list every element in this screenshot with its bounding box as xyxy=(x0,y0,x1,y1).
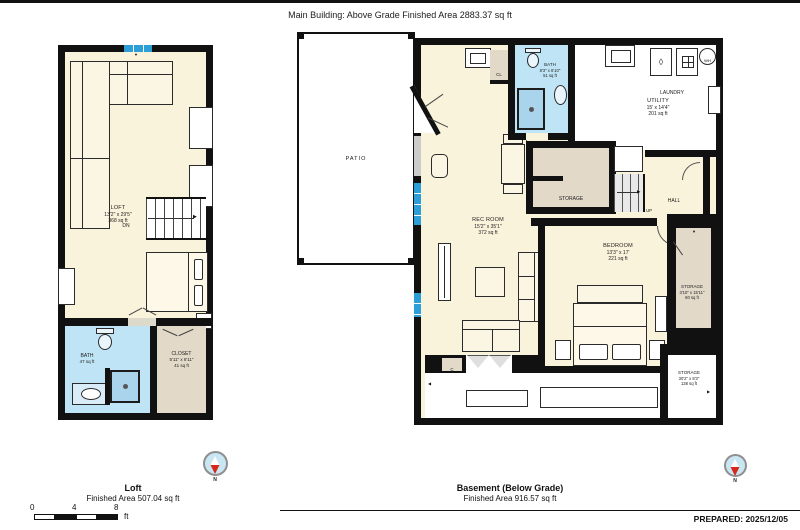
utility-sink xyxy=(605,45,635,67)
room-name: STORAGE xyxy=(559,196,583,202)
loft-bath-label: BATH 47 sq ft xyxy=(66,353,108,365)
compass-needle-white xyxy=(731,459,740,468)
scale-bar-segments xyxy=(34,514,118,521)
clipped-title-fragment xyxy=(387,0,396,2)
interior-wall xyxy=(548,133,570,140)
tv-console xyxy=(438,243,451,301)
room-name: CL xyxy=(496,72,502,77)
pillow xyxy=(612,344,641,360)
interior-wall xyxy=(533,176,563,181)
sofa-seam xyxy=(492,330,493,352)
room-area: 47 sq ft xyxy=(66,359,108,365)
storage-bottom-zone xyxy=(668,355,716,418)
c-closet-zone: C xyxy=(442,358,462,371)
console-line xyxy=(444,246,445,298)
bed-bench xyxy=(577,285,643,303)
up-text: UP xyxy=(646,208,652,213)
loveseat xyxy=(462,320,520,352)
bedroom-label: BEDROOM 13'3" x 17' 221 sq ft xyxy=(568,243,668,262)
armchair xyxy=(431,154,448,178)
cl-closet-zone: CL xyxy=(490,50,508,84)
pillow xyxy=(194,285,203,306)
room-name: BEDROOM xyxy=(568,243,668,250)
sofa-seam xyxy=(519,299,535,300)
loft-finished-area: Finished Area 507.04 sq ft xyxy=(48,494,218,503)
room-area: 368 sq ft xyxy=(73,218,163,224)
interior-wall xyxy=(531,218,657,226)
shower-drain-icon xyxy=(529,107,534,112)
scale-tick-8: 8 xyxy=(114,503,118,512)
patio-post xyxy=(298,33,304,39)
scale-segment xyxy=(34,514,55,520)
compass-needle-red xyxy=(211,465,220,474)
interior-wall xyxy=(508,133,526,140)
compass-needle-white xyxy=(211,456,220,465)
clipped-title-fragment xyxy=(454,0,466,2)
storage-mid-label: STORAGE xyxy=(533,186,609,206)
room-area: 221 sq ft xyxy=(568,256,668,262)
stairs-arrow-icon: ▶ xyxy=(193,215,197,220)
laundry-label: LAUNDRY xyxy=(642,80,702,100)
cl-label: CL xyxy=(490,62,508,82)
room-area: 60 sq ft xyxy=(668,295,716,300)
room-name: PATIO xyxy=(346,156,367,162)
interior-wall xyxy=(150,326,157,413)
stairs-arrow-icon: ▶ xyxy=(637,190,640,195)
window-alcove xyxy=(189,107,213,149)
sink-basin xyxy=(554,85,567,105)
nightstand xyxy=(555,340,571,360)
compass-icon xyxy=(203,451,228,476)
scale-segment xyxy=(97,514,118,520)
rec-room-label: REC ROOM 15'2" x 35'1" 372 sq ft xyxy=(448,217,528,236)
shelf xyxy=(540,387,658,408)
window-icon xyxy=(414,183,421,225)
interior-wall xyxy=(703,150,710,221)
room-area: 138 sq ft xyxy=(666,381,712,386)
top-rule-thin xyxy=(0,0,800,1)
floor-plan-sheet: { "header": { "title": "Main Building: A… xyxy=(0,0,800,530)
basement-plan: REC ROOM 15'2" x 35'1" 372 sq ft CL BATH… xyxy=(414,38,723,425)
storage-right-zone xyxy=(676,228,711,328)
wet-bar-sink xyxy=(465,48,491,68)
pillow xyxy=(579,344,608,360)
bottom-rule xyxy=(280,510,800,511)
basement-title: Basement (Below Grade) xyxy=(405,483,615,493)
patio: PATIO xyxy=(297,32,415,265)
sofa-seam xyxy=(519,276,535,277)
stair-landing xyxy=(614,146,643,172)
room-name: LAUNDRY xyxy=(660,90,684,96)
hall-label: HALL xyxy=(650,188,698,208)
sofa-back-line xyxy=(71,62,83,228)
loft-title: Loft xyxy=(48,483,218,493)
bath-label: BATH 8'3" x 6'10" 51 sq ft xyxy=(530,62,570,78)
door-arrow-icon: ▼ xyxy=(692,230,696,234)
compass-needle-red xyxy=(731,467,740,476)
loft-closet-zone xyxy=(157,326,206,413)
table xyxy=(501,144,525,184)
scale-segment xyxy=(55,514,76,520)
storage-right-label: STORAGE 3'10" x 15'11" 60 sq ft xyxy=(668,284,716,300)
sink-basin xyxy=(470,53,486,64)
loft-room-label: LOFT 13'2" x 29'5" 368 sq ft xyxy=(73,205,163,224)
pillow xyxy=(194,259,203,280)
compass-basement: N xyxy=(716,454,754,484)
stairs-arrow-line xyxy=(617,192,639,193)
scale-bar: 0 4 8 ft xyxy=(28,503,148,525)
shower-drain-icon xyxy=(123,384,128,389)
door-swing xyxy=(467,355,489,368)
door-threshold xyxy=(128,318,156,326)
loft-plan: ▼ ▶ DN LOFT 13'2" x 29'5" 368 sq ft xyxy=(58,45,213,420)
double-door-gap xyxy=(466,355,512,373)
room-name: REC ROOM xyxy=(448,217,528,224)
dresser xyxy=(655,296,667,332)
room-name: C xyxy=(450,367,453,372)
storage-bottom-label: STORAGE 30'2" x 8'3" 138 sq ft xyxy=(666,370,712,386)
window-icon xyxy=(414,293,421,317)
wh-label: WH xyxy=(704,58,711,63)
window-alcove xyxy=(708,86,721,114)
toilet-bowl xyxy=(98,334,112,350)
interior-wall xyxy=(538,218,545,373)
dryer xyxy=(676,48,698,76)
sofa-seam xyxy=(127,62,128,104)
utility-label: UTILITY 15' x 14'4" 201 sq ft xyxy=(618,98,698,117)
scale-tick-4: 4 xyxy=(72,503,76,512)
sofa-back-line xyxy=(463,321,519,330)
washer: ◊ xyxy=(650,48,672,76)
prepared-date: PREPARED: 2025/12/05 xyxy=(560,514,788,524)
interior-wall xyxy=(508,45,515,140)
compass-loft: N xyxy=(196,451,234,483)
sink-basin xyxy=(81,388,101,400)
window-icon xyxy=(124,45,152,52)
room-area: 372 sq ft xyxy=(448,230,528,236)
chair xyxy=(503,184,523,194)
sofa xyxy=(70,61,110,229)
patio-post xyxy=(298,258,304,264)
room-name: HALL xyxy=(668,198,681,204)
interior-wall xyxy=(660,344,716,355)
stairs-up: ▶ xyxy=(612,174,645,212)
shelf xyxy=(466,390,528,407)
interior-wall xyxy=(568,45,575,150)
dryer-grid-icon xyxy=(682,56,694,68)
patio-label: PATIO xyxy=(299,146,413,166)
coffee-table xyxy=(475,267,505,297)
scale-unit: ft xyxy=(124,512,128,521)
loft-closet-label: CLOSET 5'11" x 6'11" 41 sq ft xyxy=(157,351,206,369)
sofa-seam xyxy=(71,158,109,159)
room-name: UTILITY xyxy=(618,98,698,105)
bed xyxy=(573,303,647,366)
water-heater: WH xyxy=(699,48,716,65)
scale-tick-0: 0 xyxy=(30,503,34,512)
room-name: LOFT xyxy=(73,205,163,212)
bed-fold-line xyxy=(188,253,189,311)
sheet-header-title: Main Building: Above Grade Finished Area… xyxy=(0,10,800,20)
door-swing xyxy=(489,355,511,368)
compass-icon xyxy=(724,454,747,477)
bed-fold-line xyxy=(574,326,646,327)
room-area: 51 sq ft xyxy=(530,73,570,78)
north-label: N xyxy=(716,478,754,484)
washer-drop-icon: ◊ xyxy=(659,57,663,67)
window-alcove xyxy=(58,268,75,305)
room-area: 41 sq ft xyxy=(157,363,206,369)
wall-threshold xyxy=(414,136,421,176)
bed xyxy=(146,252,208,312)
door-arrow-icon: ◀ xyxy=(428,382,431,386)
door-arrow-icon: ▶ xyxy=(707,390,710,394)
sink-basin xyxy=(611,50,631,63)
shower xyxy=(110,370,140,403)
shower xyxy=(517,88,545,130)
door-arrow-icon: ▼ xyxy=(590,360,594,364)
room-area: 201 sq ft xyxy=(618,111,698,117)
basement-finished-area: Finished Area 916.57 sq ft xyxy=(405,494,615,503)
storage-mid-zone: STORAGE xyxy=(533,148,609,207)
door-arrow-icon: ▼ xyxy=(134,53,138,57)
scale-segment xyxy=(76,514,97,520)
